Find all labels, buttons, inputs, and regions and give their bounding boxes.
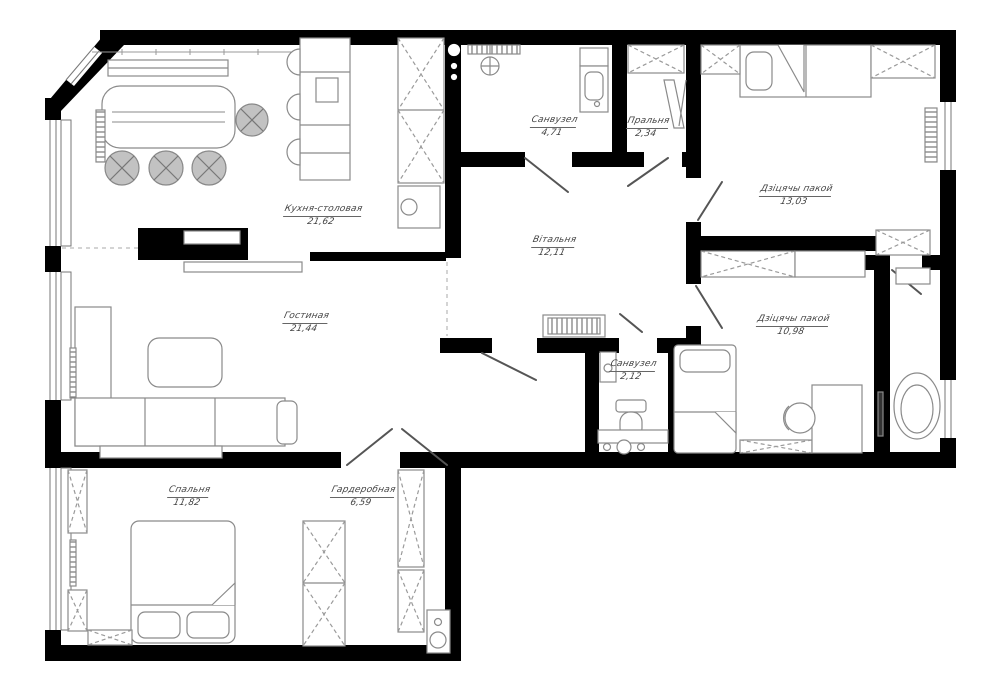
sofa-cushion: [277, 401, 297, 444]
window-living-left: [45, 272, 71, 400]
radiator: [70, 540, 76, 586]
pillow: [187, 612, 229, 638]
towel-radiator: [878, 392, 883, 436]
pillow: [138, 612, 180, 638]
wardrobe-closet-right: [398, 470, 424, 632]
radiator: [96, 110, 105, 162]
kid-bed-1: [740, 45, 871, 97]
window-tubroom-right: [940, 380, 956, 438]
stool: [236, 104, 268, 136]
window-kids1-right: [940, 102, 956, 170]
stool: [149, 151, 183, 185]
door-bathroom-main: [525, 158, 568, 192]
hall-furniture: [543, 315, 605, 337]
open-boundaries: [62, 248, 447, 336]
island-sink: [316, 78, 338, 102]
bathroom-main-fixtures: [449, 45, 609, 113]
bedroom-furniture: [68, 470, 235, 645]
radiator: [925, 108, 937, 162]
wardrobe-furniture: [303, 470, 450, 653]
radiator: [70, 348, 76, 398]
door-bedroom: [347, 429, 392, 465]
oven: [398, 186, 440, 228]
pillow: [746, 52, 772, 90]
curtain-line: [92, 49, 296, 55]
door-kids-room-1: [698, 182, 722, 220]
laundry-shelf: [628, 45, 684, 73]
tall-cabinet: [398, 38, 444, 183]
washbasin: [580, 48, 608, 112]
kitchen-island: [287, 38, 350, 180]
double-bed: [131, 521, 235, 643]
ironing-board: [664, 80, 686, 128]
bathtub: [894, 373, 940, 439]
sink-counter: [598, 430, 668, 454]
floor-plan-drawing: [0, 0, 1000, 691]
door-living-room: [482, 353, 536, 380]
door-bathroom-small: [620, 314, 642, 332]
window-kitchen-left: [45, 120, 71, 246]
kids-room-2-furniture: [674, 251, 865, 453]
bar-chair: [287, 139, 300, 165]
kid2-shelf: [795, 251, 865, 277]
shelf: [896, 268, 930, 284]
bedside-bench: [88, 630, 132, 645]
shoe-cabinet: [543, 315, 605, 337]
kid2-closet-top: [701, 251, 865, 277]
kid-bed-2: [674, 345, 736, 453]
window-bedroom-left: [45, 468, 71, 630]
bar-chair: [287, 49, 300, 75]
stool: [192, 151, 226, 185]
kid1-closet-left: [701, 45, 740, 74]
small-sink: [600, 352, 616, 382]
stool: [105, 151, 139, 185]
kid2-desk: [812, 385, 862, 453]
sideboard: [108, 60, 228, 76]
shower-drain-grid: [468, 45, 520, 54]
kids-room-1-furniture: [701, 45, 937, 255]
coffee-table: [148, 338, 222, 387]
bar-chair: [287, 94, 300, 120]
pillow: [680, 350, 730, 372]
dining-table: [102, 86, 235, 148]
floor-plan: Кухня-столовая 21,62 Гостиная 21,44 Спал…: [0, 0, 1000, 691]
bathroom-small-fixtures: [598, 352, 668, 454]
kid1-desk: [876, 230, 930, 255]
laundry-fixtures: [628, 45, 686, 128]
living-room-furniture: [70, 307, 297, 458]
door-kids-room-2: [696, 286, 722, 328]
water-heater: [427, 610, 450, 653]
tv-console: [184, 262, 302, 272]
kid1-closet-right: [871, 45, 935, 78]
kid2-chair: [784, 403, 815, 433]
kid2-dresser: [740, 440, 812, 453]
wardrobe-closet-left: [303, 521, 345, 646]
